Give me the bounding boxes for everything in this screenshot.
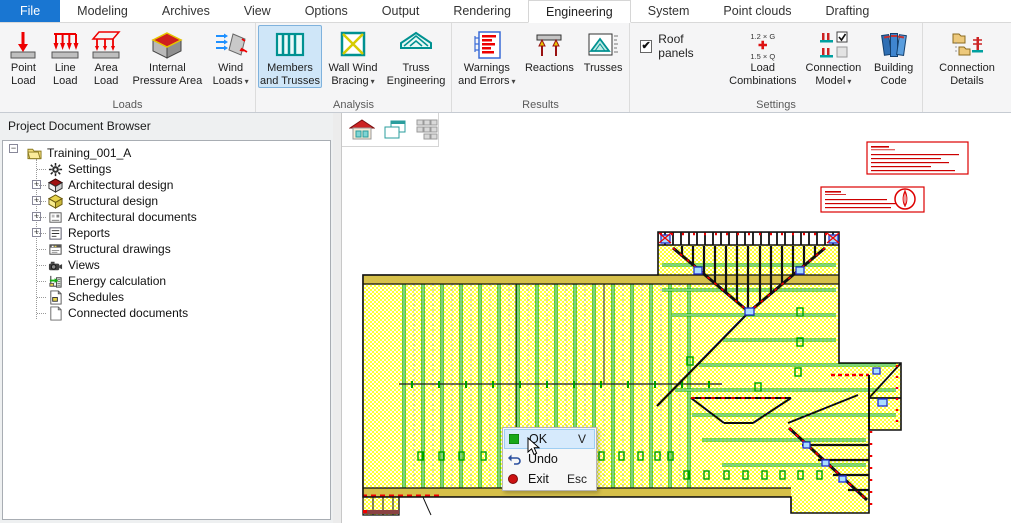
ribbon-group-connection-details: Connection Details [923,23,1011,112]
camera-icon [48,258,63,273]
reactions-icon [532,28,566,62]
energy-calculation-icon [48,274,63,289]
tree-item-label: Structural drawings [68,242,171,256]
connection-details-icon [950,28,984,62]
line-load-button[interactable]: Line Load [45,25,86,88]
load-combinations-button[interactable]: 1.2 × G ✚ 1.5 × Q Load Combinations [726,25,799,88]
model-home-view-icon[interactable] [349,118,375,142]
tree-item-label: Reports [68,226,110,240]
dropdown-caret: ▾ [847,77,851,86]
tree-item-structural-design[interactable]: Structural design [3,193,330,209]
tab-modeling[interactable]: Modeling [60,0,145,22]
reports-icon [48,226,63,241]
dropdown-caret: ▾ [245,77,249,86]
ribbon-group-results: Warnings and Errors▾ Reactions Trusses R… [452,23,630,112]
ok-icon [509,434,529,444]
building-code-label: Building Code [868,62,919,87]
members-and-trusses-button[interactable]: Members and Trusses [258,25,322,88]
tree-item-connected-documents[interactable]: Connected documents [3,305,330,321]
area-load-icon [89,28,123,62]
load-combinations-icon: 1.2 × G ✚ 1.5 × Q [746,28,780,62]
point-load-icon [6,28,40,62]
tree-item-architectural-documents[interactable]: Architectural documents [3,209,330,225]
tree-item-root[interactable]: Training_001_A [3,145,330,161]
ribbon-group-analysis: Members and Trusses Wall Wind Bracing▾ T… [256,23,452,112]
wall-wind-bracing-label: Wall Wind Bracing▾ [323,62,383,88]
tab-point-clouds[interactable]: Point clouds [706,0,808,22]
tree-item-structural-drawings[interactable]: Structural drawings [3,241,330,257]
internal-pressure-area-icon [150,28,184,62]
building-code-button[interactable]: Building Code [867,25,920,88]
tree-item-energy-calculation[interactable]: Energy calculation [3,273,330,289]
reactions-button[interactable]: Reactions [520,25,580,76]
tile-windows-icon[interactable] [415,118,438,142]
truss-engineering-button[interactable]: Truss Engineering [384,25,448,88]
area-load-button[interactable]: Area Load [86,25,127,88]
members-and-trusses-label: Members and Trusses [259,62,321,87]
mouse-cursor [527,437,540,461]
project-tree: − Training_001_A Settings + Architectura… [2,140,331,520]
warnings-and-errors-label: Warnings and Errors▾ [455,62,519,88]
line-load-icon [48,28,82,62]
tab-output[interactable]: Output [365,0,437,22]
architectural-documents-icon [48,210,63,225]
wall-wind-bracing-button[interactable]: Wall Wind Bracing▾ [322,25,384,89]
area-load-label: Area Load [87,62,126,87]
context-menu-undo[interactable]: Undo [504,449,595,469]
warnings-and-errors-button[interactable]: Warnings and Errors▾ [454,25,520,89]
wind-loads-button[interactable]: Wind Loads▾ [208,25,253,89]
members-and-trusses-icon [273,28,307,62]
tree-item-label: Schedules [68,290,124,304]
roof-framing-plan [342,113,1011,523]
point-load-label: Point Load [3,62,44,87]
tree-item-label: Energy calculation [68,274,166,288]
building-code-icon [877,28,911,62]
connection-model-label: Connection Model▾ [800,62,866,88]
schedules-icon [48,290,63,305]
group-label-settings: Settings [630,99,922,111]
group-label-results: Results [452,99,629,111]
tab-engineering[interactable]: Engineering [528,0,631,23]
tab-file[interactable]: File [0,0,60,22]
tab-rendering[interactable]: Rendering [436,0,528,22]
tree-item-label: Structural design [68,194,158,208]
trusses-label: Trusses [584,62,623,75]
roof-panels-label: Roof panels [658,32,718,60]
tree-item-views[interactable]: Views [3,257,330,273]
exit-icon [508,474,528,484]
warnings-and-errors-icon [470,28,504,62]
ribbon: Point Load Line Load Area Load Internal … [0,23,1011,113]
architectural-design-icon [48,178,63,193]
connection-details-button[interactable]: Connection Details [927,25,1007,88]
group-label-loads: Loads [0,99,255,111]
roof-panels-checkbox[interactable]: ✔ [640,40,652,53]
ribbon-group-settings: ✔ Roof panels 1.2 × G ✚ 1.5 × Q Load Com… [630,23,923,112]
dropdown-caret: ▾ [371,77,375,86]
drawing-canvas[interactable] [341,113,1011,523]
tree-item-label: Settings [68,162,111,176]
structural-design-icon [48,194,63,209]
panel-title: Project Document Browser [0,113,333,138]
tree-item-settings[interactable]: Settings [3,161,330,177]
tree-item-architectural-design[interactable]: Architectural design [3,177,330,193]
project-document-browser-panel: Project Document Browser − Training_001_… [0,113,333,523]
note-box-2 [821,187,924,212]
tree-item-label: Architectural design [68,178,173,192]
folder-open-icon [27,146,42,161]
tab-drafting[interactable]: Drafting [809,0,887,22]
tree-item-label: Connected documents [68,306,188,320]
wall-wind-bracing-icon [336,28,370,62]
reactions-label: Reactions [525,62,574,75]
truss-engineering-label: Truss Engineering [385,62,447,87]
tree-item-label: Architectural documents [68,210,197,224]
context-menu-ok[interactable]: OK V [504,429,595,449]
tab-archives[interactable]: Archives [145,0,227,22]
tree-item-schedules[interactable]: Schedules [3,289,330,305]
note-box-1 [867,142,968,174]
tab-system[interactable]: System [631,0,707,22]
trusses-button[interactable]: Trusses [579,25,627,76]
gear-icon [48,162,63,177]
internal-pressure-area-label: Internal Pressure Area [128,62,208,87]
internal-pressure-area-button[interactable]: Internal Pressure Area [127,25,209,88]
group-label-analysis: Analysis [256,99,451,111]
connection-model-button[interactable]: Connection Model▾ [799,25,867,89]
load-combinations-label: Load Combinations [727,62,798,87]
truss-engineering-icon [399,28,433,62]
connection-model-icon [816,28,850,62]
line-load-label: Line Load [46,62,85,87]
context-menu-exit[interactable]: Exit Esc [504,469,595,489]
wind-loads-icon [214,28,248,62]
panel-splitter[interactable] [333,113,341,523]
ribbon-group-loads: Point Load Line Load Area Load Internal … [0,23,256,112]
application-window: File Modeling Archives View Options Outp… [0,0,1011,523]
tree-item-reports[interactable]: Reports [3,225,330,241]
context-menu: OK V Undo Exit Esc [502,427,597,491]
canvas-toolbar [342,113,439,147]
dropdown-caret: ▾ [511,77,515,86]
roof-panels-checkbox-row: ✔ Roof panels [640,32,718,60]
tree-item-label: Views [68,258,100,272]
north-arrow-symbol [895,189,915,209]
document-icon [48,306,63,321]
undo-icon [508,454,528,465]
connection-details-label: Connection Details [928,62,1006,87]
ribbon-tab-bar: File Modeling Archives View Options Outp… [0,0,1011,23]
structural-drawings-icon [48,242,63,257]
point-load-button[interactable]: Point Load [2,25,45,88]
tab-options[interactable]: Options [288,0,365,22]
wind-loads-label: Wind Loads▾ [209,62,252,88]
trusses-icon [586,28,620,62]
tab-view[interactable]: View [227,0,288,22]
tree-item-label: Training_001_A [47,146,131,160]
cascade-windows-icon[interactable] [383,118,407,142]
